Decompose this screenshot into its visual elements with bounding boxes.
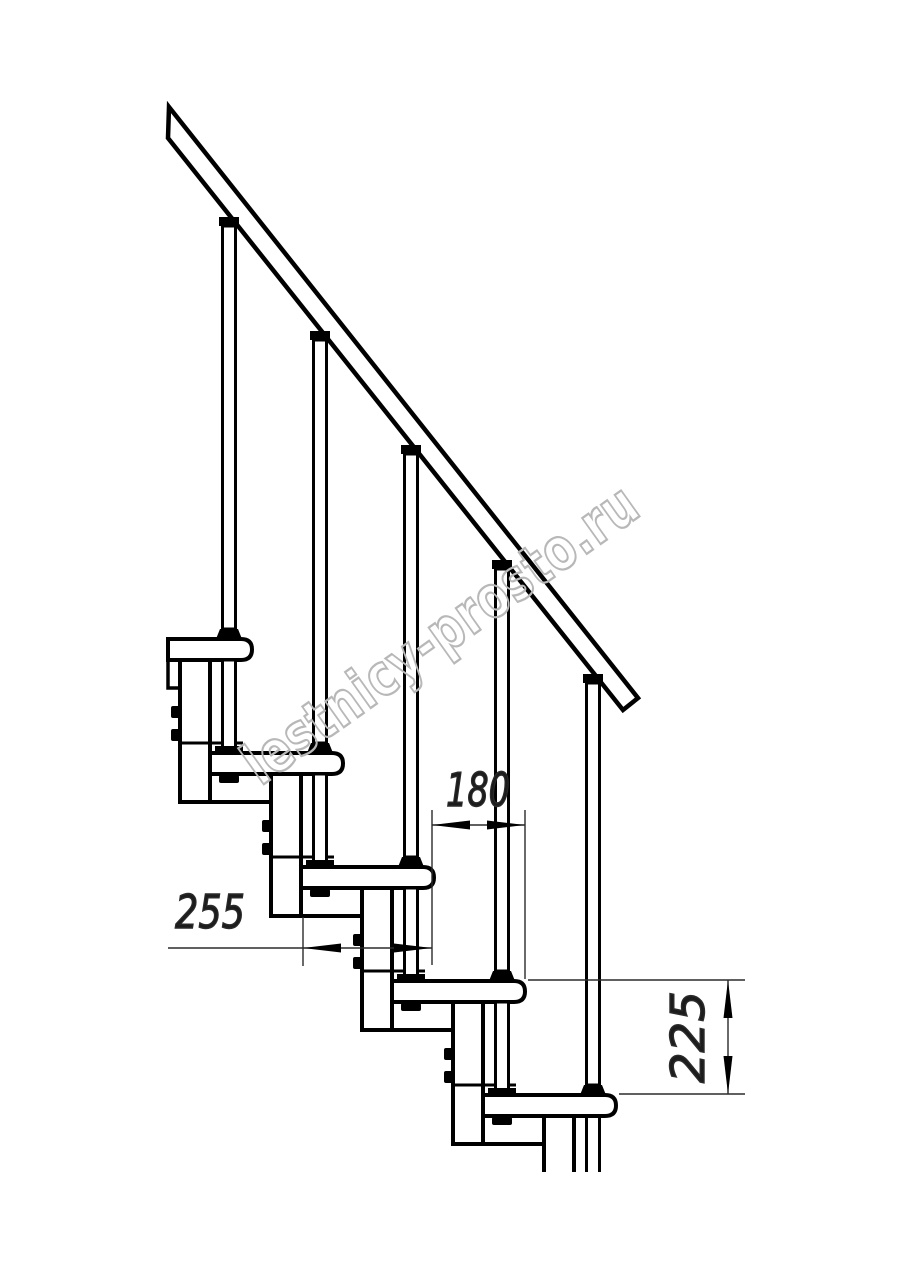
baluster-3 (397, 445, 425, 1011)
dim-255-label: 255 (175, 885, 245, 939)
baluster-4-washer (488, 1088, 516, 1095)
staircase-side-view-drawing: 180 255 225 lestnicy-prosto.ru (0, 0, 914, 1280)
dim-180-label: 180 (446, 763, 510, 817)
bolt-column3-upper (353, 934, 362, 946)
baluster-1-upper-rod (223, 226, 236, 629)
bolt-column4-upper (444, 1048, 453, 1060)
baluster-1 (215, 217, 243, 783)
baluster-2-lower-rod (314, 774, 327, 867)
baluster-1-tread-collar (216, 629, 242, 639)
baluster-3-nut (401, 1003, 421, 1011)
bolt-column1-lower (171, 729, 180, 741)
dim-225-label: 225 (661, 991, 715, 1083)
dim-225-arrow-down (724, 1056, 733, 1094)
baluster-5-upper-rod (587, 683, 600, 1085)
baluster-3-tread-collar (398, 857, 424, 867)
dimension-225: 225 (528, 980, 745, 1094)
baluster-4 (488, 560, 516, 1125)
tread-4 (392, 981, 525, 1002)
dim-180-arrow-left (432, 821, 470, 830)
staircase-drawing-page: 180 255 225 lestnicy-prosto.ru (0, 0, 914, 1280)
support-column-2 (271, 774, 301, 916)
baluster-4-tread-collar (489, 971, 515, 981)
bolt-column1-upper (171, 706, 180, 718)
bolt-column2-lower (262, 843, 271, 855)
baluster-4-nut (492, 1117, 512, 1125)
dim-225-arrow-up (724, 980, 733, 1018)
tread-3 (301, 867, 434, 888)
baluster-4-lower-rod (496, 1002, 509, 1095)
support-column-1 (180, 660, 210, 802)
tread-1 (168, 639, 252, 660)
tread-5 (483, 1095, 616, 1116)
baluster-2-nut (310, 889, 330, 897)
bolt-column4-lower (444, 1071, 453, 1083)
support-column-4 (453, 1002, 483, 1144)
baluster-2 (306, 331, 334, 897)
bolt-column3-lower (353, 957, 362, 969)
dim-255-arrow-left (303, 944, 341, 953)
baluster-3-lower-rod (405, 888, 418, 981)
baluster-1-nut (219, 775, 239, 783)
baluster-2-washer (306, 860, 334, 867)
support-column-3 (362, 888, 392, 1030)
dimension-180: 180 (432, 763, 525, 979)
baluster-3-washer (397, 974, 425, 981)
baluster-5-tread-collar (580, 1085, 606, 1095)
bolt-column2-upper (262, 820, 271, 832)
